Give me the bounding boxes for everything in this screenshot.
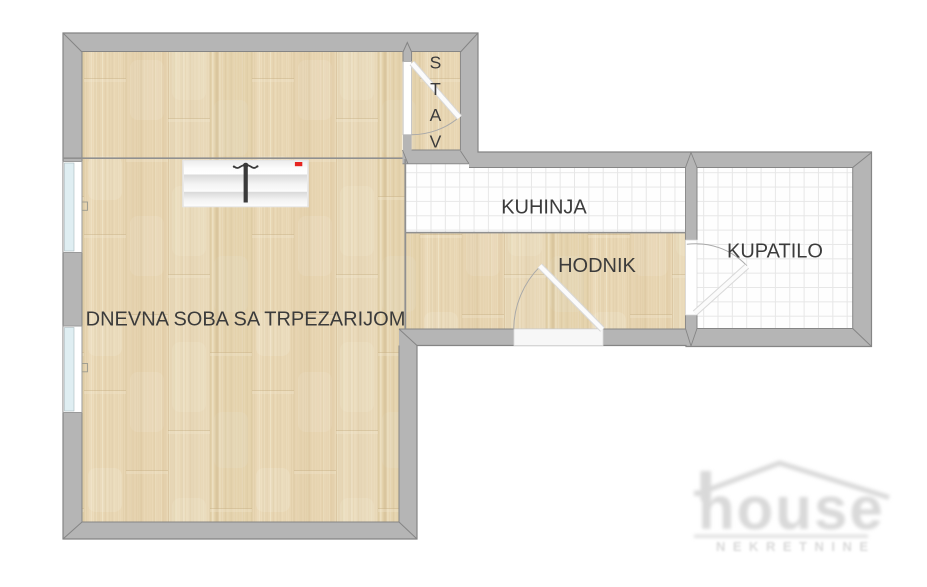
- svg-text:A: A: [430, 105, 442, 125]
- svg-text:HODNIK: HODNIK: [558, 255, 636, 277]
- svg-text:KUPATILO: KUPATILO: [727, 241, 823, 263]
- svg-text:KUHINJA: KUHINJA: [501, 196, 587, 218]
- svg-text:NEKRETNINE: NEKRETNINE: [716, 539, 876, 554]
- svg-text:S: S: [430, 53, 442, 73]
- svg-text:T: T: [430, 79, 441, 99]
- svg-text:DNEVNA SOBA SA TRPEZARIJOM: DNEVNA SOBA SA TRPEZARIJOM: [86, 309, 406, 331]
- svg-text:V: V: [430, 132, 442, 152]
